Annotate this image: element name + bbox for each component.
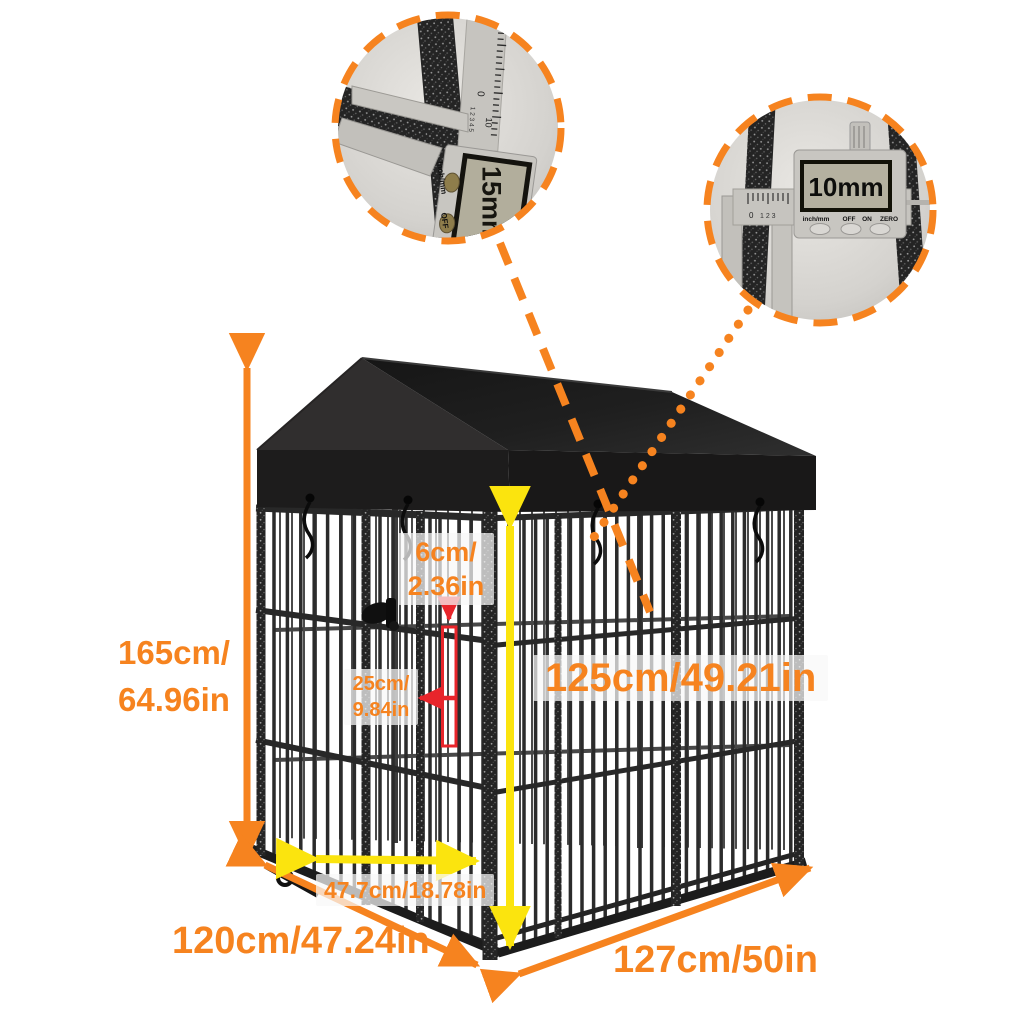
right-mid-bar bbox=[555, 514, 562, 938]
caliper-button bbox=[810, 224, 830, 235]
label-bar-gap-line2: 2.36in bbox=[408, 571, 485, 601]
thumb-screw bbox=[850, 122, 870, 152]
button-label-mode: inch/mm bbox=[803, 216, 830, 223]
caliper-button bbox=[870, 224, 890, 235]
caliper-button bbox=[841, 224, 861, 235]
label-front-width: 127cm/50in bbox=[613, 939, 818, 981]
front-left-post bbox=[257, 505, 266, 856]
caliper-inset-10mm: 0 1 2 3 10mm inch/mm OFF ON ZERO bbox=[707, 83, 936, 354]
scale-vernier: 1 2 3 bbox=[760, 213, 776, 220]
button-label-off: OFF bbox=[843, 216, 856, 223]
caliper-reading-10mm: 10mm bbox=[808, 172, 883, 202]
label-side-depth: 120cm/47.24in bbox=[172, 920, 430, 962]
label-gate-width: 47.7cm/18.78in bbox=[316, 874, 494, 906]
label-panel-spacing-line2: 9.84in bbox=[353, 699, 410, 721]
scale-zero: 0 bbox=[749, 211, 754, 220]
button-label-on: ON bbox=[862, 216, 872, 223]
label-overall-height-line2: 64.96in bbox=[118, 681, 230, 718]
caliper-display: 10mm inch/mm OFF ON ZERO bbox=[794, 150, 906, 238]
caliper-inset-15mm: 0 1 2 3 4 5 10 15mm Inch/mm OFF ON bbox=[300, 1, 561, 266]
gate-width-arrow bbox=[316, 859, 476, 861]
label-bar-gap: 6cm/ 2.36in bbox=[398, 533, 494, 605]
roof-cover bbox=[257, 358, 816, 512]
bar-gap-highlight bbox=[420, 601, 456, 746]
right-center-post bbox=[671, 509, 681, 906]
label-panel-spacing-line1: 25cm/ bbox=[353, 673, 410, 695]
kennel-dimension-diagram: 0 1 2 3 4 5 10 15mm Inch/mm OFF ON bbox=[0, 0, 1009, 1009]
label-bar-gap-line1: 6cm/ bbox=[415, 537, 477, 567]
kennel-illustration: 0 1 2 3 4 5 10 15mm Inch/mm OFF ON bbox=[0, 0, 1009, 1009]
label-overall-height: 165cm/ 64.96in bbox=[114, 629, 234, 723]
scale-ten: 10 bbox=[483, 117, 494, 128]
label-overall-height-line1: 165cm/ bbox=[118, 634, 230, 671]
button-label-zero: ZERO bbox=[880, 216, 898, 223]
label-inner-height: 125cm/49.21in bbox=[533, 655, 828, 701]
label-panel-spacing: 25cm/ 9.84in bbox=[344, 669, 418, 725]
